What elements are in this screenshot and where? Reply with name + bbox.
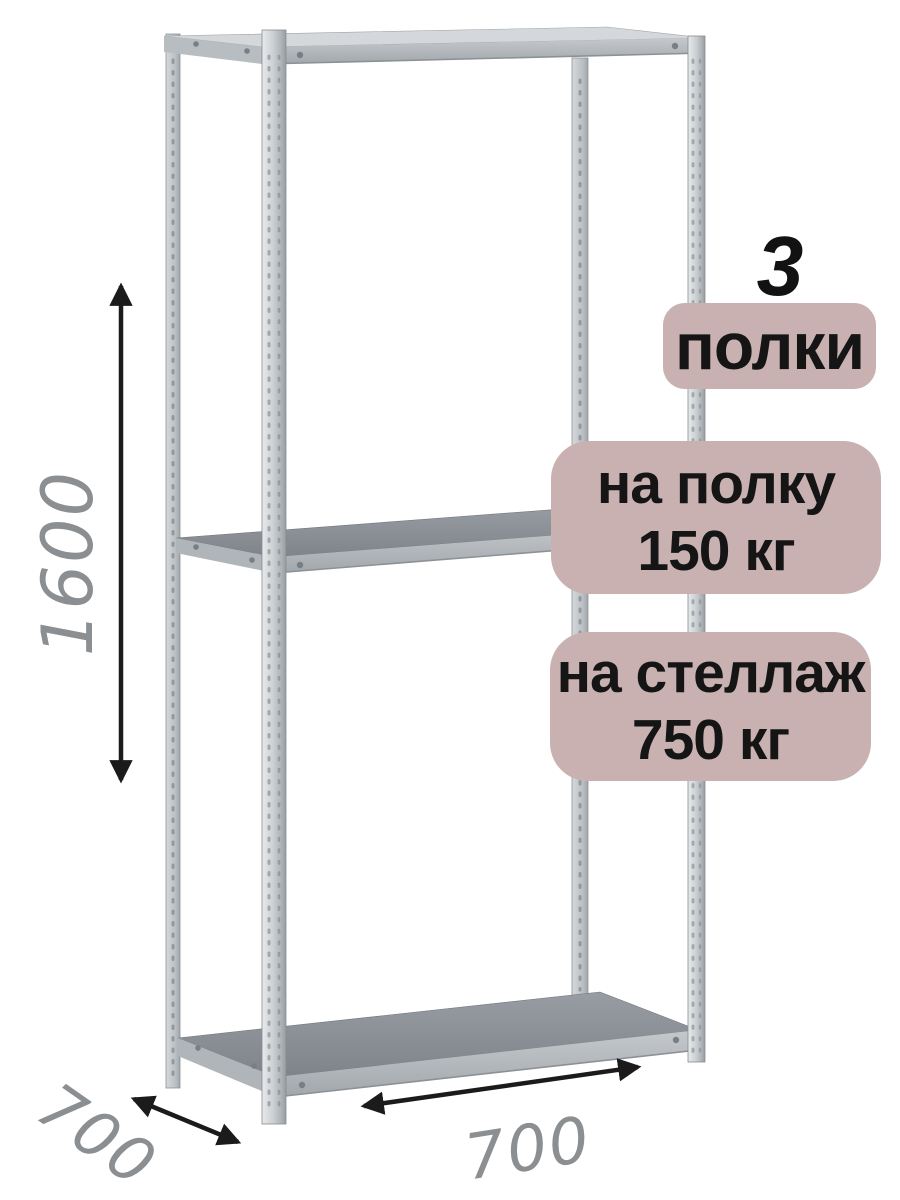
bottom-shelf	[178, 992, 698, 1097]
per-shelf-load-line1: на полку	[597, 451, 835, 517]
shelf-count-number: 3	[700, 224, 860, 308]
per-shelf-load-line2: 150 кг	[637, 518, 794, 584]
top-shelf	[164, 27, 705, 64]
total-load-line1: на стеллаж	[557, 640, 865, 706]
total-load-badge: на стеллаж 750 кг	[550, 632, 871, 781]
front-left-post	[262, 30, 286, 1124]
shelving-rack-illustration	[0, 0, 900, 1200]
product-image: 1600 700 700 3 полки на полку 150 кг на …	[0, 0, 900, 1200]
per-shelf-load-badge: на полку 150 кг	[551, 441, 881, 594]
shelves-badge: полки	[663, 303, 876, 389]
shelves-badge-label: полки	[675, 308, 864, 385]
height-dimension-label: 1600	[33, 453, 103, 673]
rear-left-post	[166, 34, 180, 1088]
total-load-line2: 750 кг	[632, 707, 789, 773]
